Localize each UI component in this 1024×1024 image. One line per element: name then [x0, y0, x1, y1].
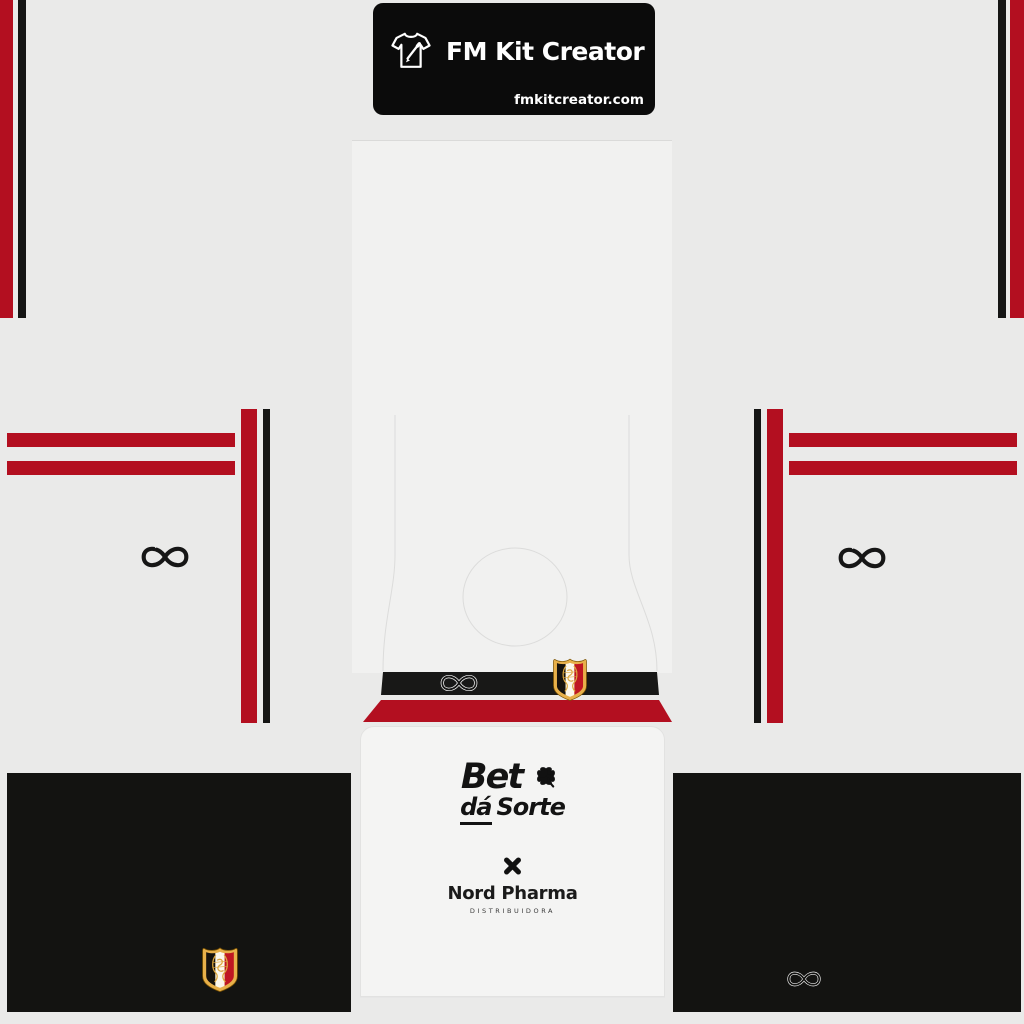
infinity-logo: [836, 543, 888, 573]
right-sleeve-cuff-stripe-1: [789, 433, 1017, 447]
shorts-left-panel: [7, 773, 351, 1012]
sorte-word: Sorte: [497, 793, 565, 821]
kit-texture-sheet: FM Kit Creator fmkitcreator.com: [0, 0, 1024, 1024]
back-right-black-stripe: [998, 0, 1006, 318]
collar-red-band: [363, 700, 672, 722]
infinity-logo-outline: [436, 672, 482, 694]
santa-cruz-crest: [201, 946, 239, 993]
banner-title: FM Kit Creator: [446, 37, 644, 66]
bet-word: Bet: [461, 757, 522, 797]
right-sleeve-black-stripe: [754, 409, 761, 723]
back-left-red-stripe: [0, 0, 13, 318]
nord-pharma-logo: Nord Pharma DISTRIBUIDORA: [447, 853, 577, 915]
nord-pharma-subtitle: DISTRIBUIDORA: [470, 907, 555, 915]
left-sleeve-black-stripe: [263, 409, 270, 723]
bet-da-sorte-logo: Bet: [460, 757, 565, 825]
infinity-logo-outline: [784, 969, 824, 989]
four-leaf-clover-icon: [528, 758, 564, 794]
x-cross-icon: [501, 853, 524, 879]
left-sleeve-red-stripe: [241, 409, 257, 723]
front-lower-panel: Bet: [360, 726, 665, 997]
right-sleeve-red-stripe: [767, 409, 783, 723]
santa-cruz-crest: [552, 657, 588, 702]
shorts-right-panel: [673, 773, 1021, 1012]
nord-pharma-name: Nord Pharma: [447, 883, 577, 904]
back-right-red-stripe: [1010, 0, 1024, 318]
right-sleeve-cuff-stripe-2: [789, 461, 1017, 475]
left-sleeve-cuff-stripe-1: [7, 433, 235, 447]
front-panel-area: [352, 140, 672, 673]
left-sleeve-cuff-stripe-2: [7, 461, 235, 475]
tshirt-pencil-icon: [389, 27, 433, 75]
da-word: dá: [460, 793, 491, 825]
back-left-black-stripe: [18, 0, 26, 318]
fm-kit-creator-banner: FM Kit Creator fmkitcreator.com: [373, 3, 655, 115]
infinity-logo: [139, 542, 191, 572]
banner-website: fmkitcreator.com: [514, 92, 644, 108]
collar-black-band: [381, 672, 659, 695]
